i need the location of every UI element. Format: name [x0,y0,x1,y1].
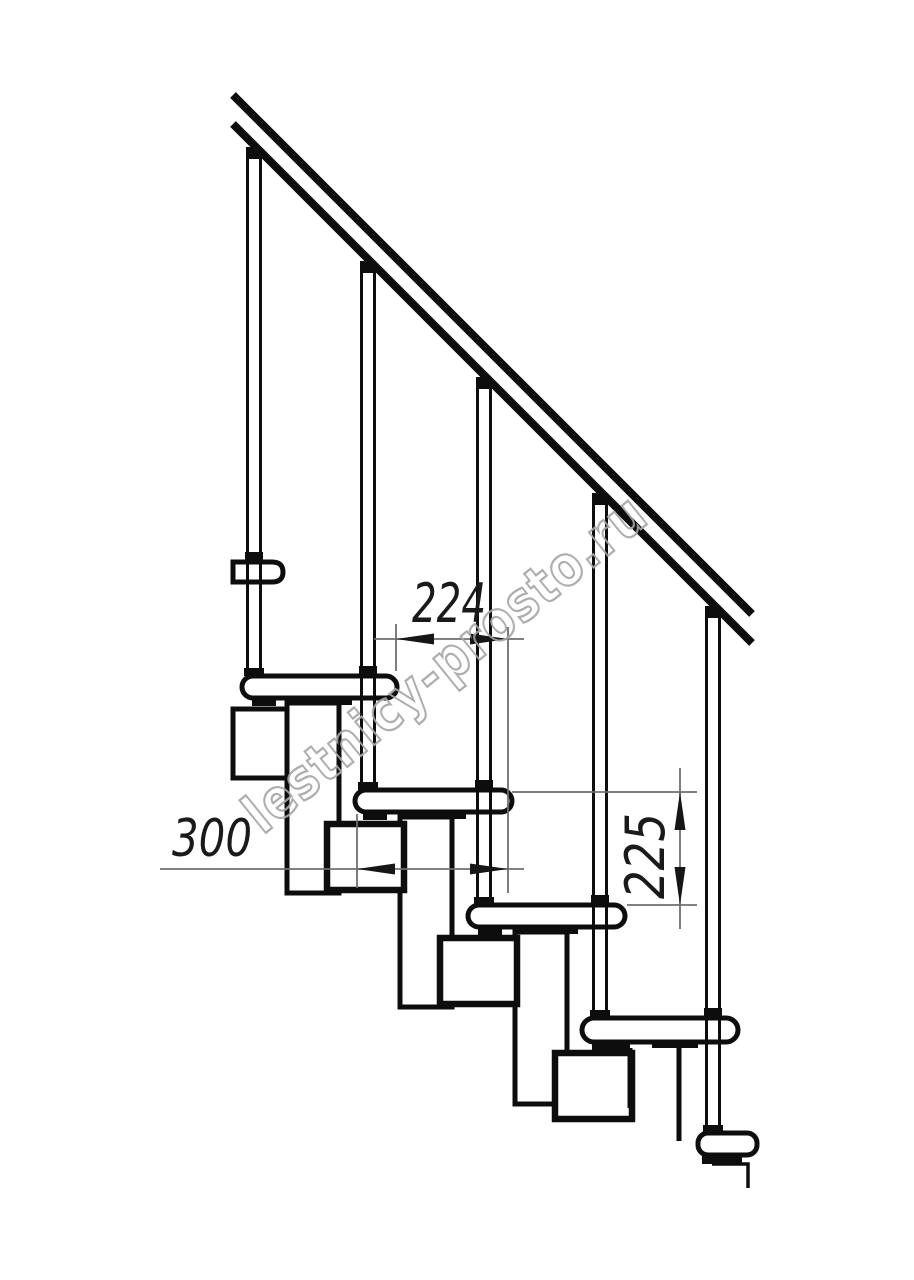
rail-cap-5 [705,606,721,618]
lower-module-outline [712,1164,748,1188]
baluster-1 [248,155,261,676]
baluster-collar-1 [245,552,263,562]
tread-1 [233,562,283,582]
handrail [233,95,752,643]
handrail-top-edge [233,95,752,614]
baluster-collar-2 [359,666,377,676]
tread-5 [582,1018,738,1042]
stringer-box-3 [555,1053,632,1119]
rail-cap-1 [246,147,262,159]
baluster-collar-4 [591,895,609,905]
stringer-box-2 [440,938,517,1004]
baluster-base-2 [358,782,378,790]
stringer-box-1 [327,824,404,890]
baluster-5 [707,614,720,1133]
baluster-base-3 [474,897,494,905]
staircase-drawing: 224 300 225 lestnicy-prosto.ru [0,0,914,1280]
tread-4 [468,905,625,927]
handrail-bottom-edge [233,124,752,643]
dimension-label-depth: 300 [172,809,252,869]
baluster-base-4 [590,1010,610,1018]
tread-6 [698,1133,757,1155]
baluster-base-1 [244,668,264,676]
staircase-drawing-canvas: 224 300 225 lestnicy-prosto.ru [0,0,914,1280]
baluster-collar-5 [704,1008,722,1018]
baluster-base-5 [703,1125,723,1133]
dimension-label-riser: 225 [614,813,677,899]
rail-cap-2 [360,261,376,273]
rail-cap-3 [476,377,492,389]
baluster-collar-3 [475,780,493,790]
tread-3 [355,790,512,812]
